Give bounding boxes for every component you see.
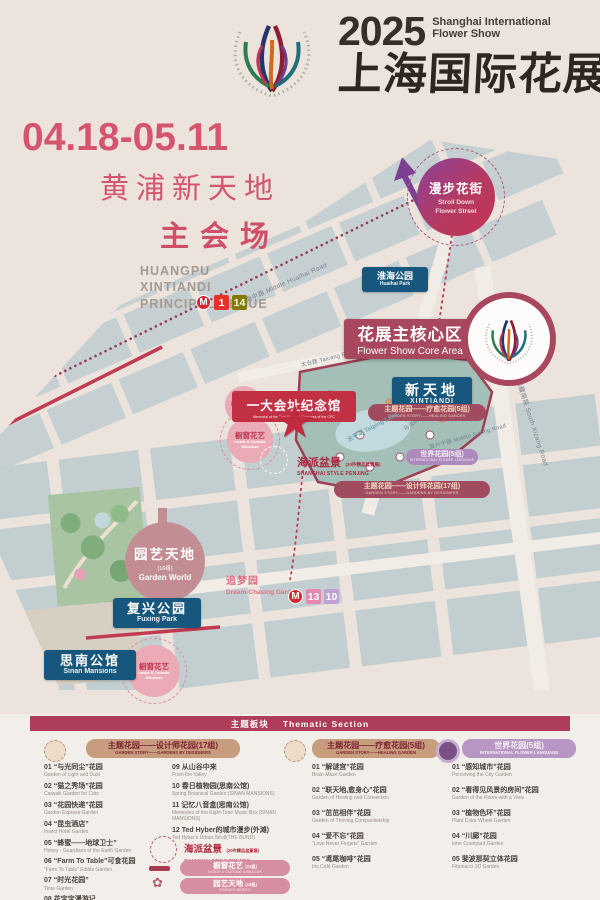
metro-station-xintiandi: M 13 10 — [288, 589, 339, 604]
event-dates: 04.18-05.11 — [22, 118, 280, 157]
legend-col-designers-1: 01 “与光同尘”花园Garden of Light and Dust 02 “… — [44, 764, 154, 900]
flower-show-logo — [220, 6, 324, 106]
venue-en-1: HUANGPU — [140, 263, 280, 279]
list-item: 03 “植物色环”花园Plant Color Wheel Garden — [452, 810, 582, 824]
legend-window-floral: 橱窗花艺 (21组) INSIDE & OUTSIDE WINDOWS — [180, 860, 290, 876]
window-floral-line-icon — [149, 866, 170, 871]
list-item: 02 “猫之秀场”花园Catwalk Garden for Cats — [44, 783, 154, 797]
legend-header-world: 世界花园(5组) INTERNATIONAL FLOWER LANGUAGE — [462, 739, 576, 758]
venue-en-2: XINTIANDI — [140, 279, 280, 295]
legend-col-world: 01 “感知城市”花园Perceiving the City Garden 02… — [452, 764, 582, 878]
sinan-mansions-label: 思南公馆 Sinan Mansions — [44, 650, 136, 680]
healing-stamp-icon — [284, 740, 306, 762]
designers-stamp-icon — [44, 740, 66, 762]
legend-col-designers-2: 09 从山谷中来From the Valley 10 春日植物园(思南公馆)Sp… — [172, 764, 300, 846]
garden-world-badge: 园艺天地 (16组) Garden World — [125, 522, 205, 602]
world-garden-tag: 世界花园(5组) INTERNATIONAL FLOWER LANGUAGE — [406, 449, 478, 465]
penjing-label: 海派盆景 (20件精品盆景展) SHANGHAI STYLE PENJING — [297, 452, 397, 477]
stroll-label-zh: 漫步花街 — [429, 178, 483, 197]
list-item: 01 “感知城市”花园Perceiving the City Garden — [452, 764, 582, 778]
list-item: 03 “茁茁相伴”花园Garden of Thriving Companions… — [312, 810, 444, 824]
legend-bar-zh: 主题板块 — [231, 718, 269, 730]
penjing-ring-icon — [260, 446, 288, 474]
list-item: 11 记忆八音盒(思南公馆)Memories of the Eight-Tone… — [172, 802, 300, 822]
huaihai-park-label: 淮海公园 Huaihai Park — [362, 267, 428, 292]
year: 2025 — [338, 12, 425, 51]
list-item: 05 “蜂蜜——地球卫士”Honey - Guardians of the Ea… — [44, 840, 154, 854]
legend-title-bar: 主题板块 Thematic Section — [30, 716, 570, 731]
memorial-star-icon: ★ — [274, 398, 315, 444]
stroll-label-en1: Stroll Down — [435, 199, 476, 207]
legend-header-healing: 主题花园——疗愈花园(5组) GARDEN STORY——HEALING GAR… — [312, 739, 440, 758]
venue-block: 04.18-05.11 黄浦新天地 主会场 HUANGPU XINTIANDI … — [22, 118, 280, 312]
legend-col-healing: 01 “解谜宫”花园Brain-Maze Garden 02 “联天地,愈身心”… — [312, 764, 444, 878]
penjing-stamp-icon — [150, 836, 177, 863]
venue-hall-zh: 主会场 — [22, 213, 280, 255]
metro-station-huaihai: M 1 14 — [196, 295, 247, 310]
list-item: 02 “联天地,愈身心”花园Garden of Healing and Conn… — [312, 787, 444, 801]
fuxing-park-label: 复兴公园 Fuxing Park — [113, 598, 201, 628]
metro-line-1-badge: 1 — [214, 295, 229, 310]
list-item: 05 斐波那契立体花园Fibonacci 3D Garden — [452, 856, 582, 870]
flower-show-poster: 2025 Shanghai International Flower Show … — [0, 0, 600, 900]
venue-name-zh: 黄浦新天地 — [22, 165, 280, 207]
metro-line-14-badge: 14 — [232, 295, 247, 310]
list-item: 06 “Farm To Table”可食花园“Farm To Table” Ed… — [44, 858, 154, 872]
world-dot-icon — [436, 739, 460, 763]
stroll-flower-street-badge: 漫步花街 Stroll Down Flower Street — [417, 158, 495, 236]
list-item: 10 春日植物园(思南公馆)Spring Botanical Garden (S… — [172, 783, 300, 797]
list-item: 01 “与光同尘”花园Garden of Light and Dust — [44, 764, 154, 778]
stroll-label-en2: Flower Street — [435, 208, 476, 216]
title-en-line2: Flower Show — [432, 29, 551, 41]
metro-line-13-badge: 13 — [306, 589, 321, 604]
list-item: 02 “看得见风景的房间”花园Garden of the Room with a… — [452, 787, 582, 801]
list-item: 04 “爱不忘”花园“Love Never Forgets” Garden — [312, 833, 444, 847]
list-item: 04 “昆虫酒店”Insect Hotel Garden — [44, 821, 154, 835]
core-area-label: 花展主核心区 Flower Show Core Area — [344, 319, 476, 359]
list-item: 01 “解谜宫”花园Brain-Maze Garden — [312, 764, 444, 778]
garden-world-flower-icon: ✿ — [152, 876, 163, 889]
list-item: 07 “时光花园”Time Garden — [44, 877, 154, 891]
legend-garden-world: 园艺天地 (16组) GARDEN WORLD — [180, 878, 290, 894]
legend-header-designers: 主题花园——设计师花园(17组) GARDEN STORY——GARDENS B… — [86, 739, 240, 758]
list-item: 05 “鸢尾咖啡”花园Iris Café Garden — [312, 856, 444, 870]
metro-logo-icon: M — [196, 295, 211, 310]
metro-line-10-badge: 10 — [324, 589, 339, 604]
list-item: 04 “川廊”花园Inter Courtyard Garden — [452, 833, 582, 847]
metro-logo-icon: M — [288, 589, 303, 604]
designers-garden-tag: 主题花园——设计师花园(17组) GARDEN STORY——GARDENS B… — [334, 481, 490, 498]
list-item: 09 从山谷中来From the Valley — [172, 764, 300, 778]
legend-bar-en: Thematic Section — [283, 719, 369, 729]
list-item: 08 花宝宝漫游记Flower Baby's Adventure — [44, 896, 154, 900]
title-zh: 上海国际花展 — [337, 53, 589, 97]
list-item: 03 “花园快递”花园Garden Express Garden — [44, 802, 154, 816]
flower-show-emblem-badge — [462, 292, 556, 386]
